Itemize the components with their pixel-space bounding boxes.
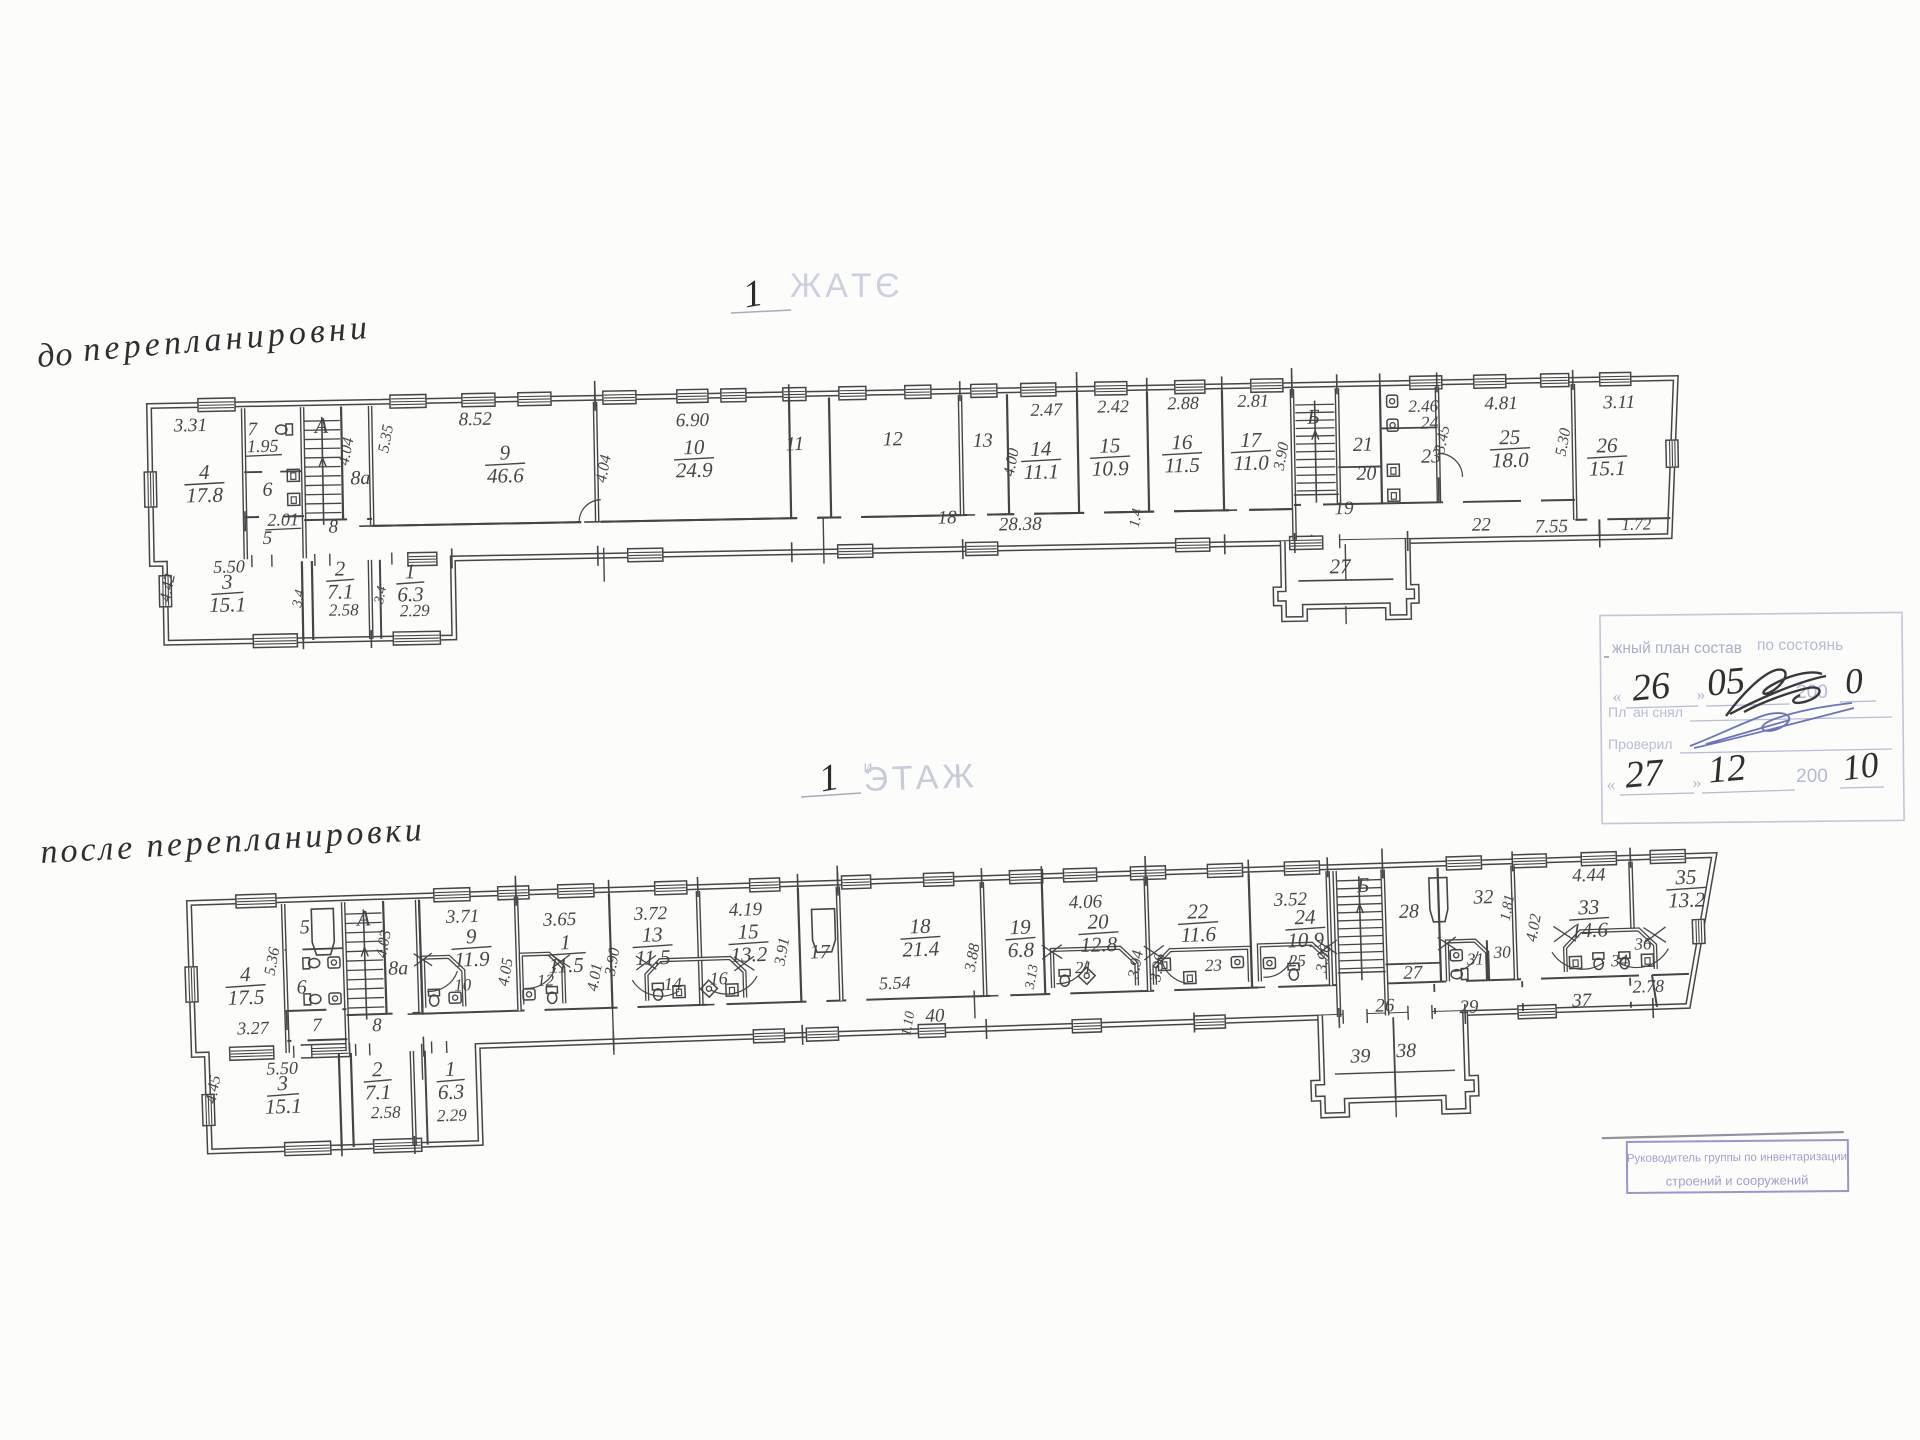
svg-text:13: 13 (973, 430, 993, 452)
svg-text:46.6: 46.6 (487, 463, 525, 488)
svg-text:Б: Б (1306, 405, 1320, 429)
svg-text:ЭТАЖ: ЭТАЖ (786, 267, 900, 305)
svg-text:8.52: 8.52 (458, 409, 492, 431)
svg-text:3.27: 3.27 (236, 1018, 270, 1039)
svg-text:12: 12 (883, 428, 903, 450)
svg-text:11.5: 11.5 (1164, 453, 1200, 478)
svg-text:7.55: 7.55 (1535, 516, 1569, 538)
svg-text:6: 6 (262, 479, 272, 501)
svg-text:26: 26 (1630, 664, 1672, 709)
svg-text:28.38: 28.38 (999, 514, 1043, 536)
svg-text:27: 27 (1623, 751, 1667, 796)
svg-text:12: 12 (537, 971, 555, 991)
svg-text:15.1: 15.1 (1589, 456, 1626, 481)
svg-text:9: 9 (499, 440, 510, 464)
svg-text:5.54: 5.54 (879, 972, 911, 993)
svg-text:8: 8 (328, 517, 338, 538)
svg-text:после: после (39, 829, 136, 871)
svg-text:37: 37 (1571, 990, 1593, 1012)
svg-text:6.3: 6.3 (438, 1079, 465, 1104)
svg-text:1: 1 (560, 930, 571, 954)
svg-text:12: 12 (1706, 746, 1748, 791)
svg-text:11.9: 11.9 (454, 947, 490, 972)
svg-text:3: 3 (276, 1071, 288, 1095)
svg-text:«: « (1607, 774, 1616, 794)
svg-text:10.9: 10.9 (1092, 456, 1130, 481)
svg-text:24.9: 24.9 (676, 458, 714, 483)
svg-text:6.90: 6.90 (676, 410, 710, 432)
svg-text:13: 13 (641, 922, 663, 947)
svg-text:39: 39 (1349, 1045, 1371, 1068)
svg-text:11.5: 11.5 (635, 945, 671, 970)
svg-text:27: 27 (1403, 962, 1424, 984)
svg-text:«: « (1613, 686, 1622, 706)
svg-text:2.58: 2.58 (371, 1102, 402, 1122)
svg-text:23: 23 (1205, 956, 1223, 976)
svg-text:2.88: 2.88 (1167, 393, 1199, 414)
svg-text:15: 15 (1099, 433, 1120, 457)
svg-text:11.6: 11.6 (1181, 922, 1217, 947)
svg-text:Проверил: Проверил (1608, 736, 1672, 752)
svg-text:2.42: 2.42 (1097, 396, 1129, 417)
svg-text:3.31: 3.31 (173, 415, 208, 437)
svg-text:29: 29 (1459, 997, 1479, 1019)
svg-text:26: 26 (1596, 433, 1618, 457)
svg-text:Руководитель группы по инвента: Руководитель группы по инвентаризации (1627, 1151, 1847, 1165)
svg-text:22: 22 (1187, 899, 1209, 924)
svg-text:2.47: 2.47 (1030, 399, 1063, 420)
svg-text:1.72: 1.72 (1621, 514, 1652, 534)
svg-text:21.4: 21.4 (902, 936, 940, 961)
svg-text:15: 15 (737, 919, 759, 944)
svg-text:5: 5 (263, 528, 273, 549)
svg-text:30: 30 (1492, 942, 1511, 962)
svg-text:25: 25 (1289, 951, 1307, 971)
svg-text:4: 4 (199, 460, 210, 484)
svg-text:5: 5 (299, 916, 310, 938)
svg-text:2.01: 2.01 (267, 509, 299, 530)
svg-text:19: 19 (1334, 498, 1354, 519)
svg-text:3: 3 (221, 570, 233, 594)
svg-text:2.78: 2.78 (1632, 976, 1664, 997)
svg-text:200: 200 (1796, 766, 1828, 787)
svg-text:14: 14 (663, 974, 682, 995)
svg-text:11.1: 11.1 (1024, 459, 1060, 484)
svg-text:строений и сооружений: строений и сооружений (1666, 1172, 1809, 1188)
svg-text:17: 17 (1240, 428, 1263, 452)
svg-text:32: 32 (1472, 886, 1494, 909)
svg-text:27: 27 (1329, 554, 1352, 578)
svg-text:6: 6 (296, 976, 307, 998)
svg-text:1.95: 1.95 (247, 436, 279, 457)
svg-text:13.2: 13.2 (730, 942, 768, 967)
svg-text:8а: 8а (388, 957, 409, 980)
svg-text:»: » (1697, 684, 1706, 704)
svg-text:20: 20 (1087, 909, 1109, 934)
svg-text:13.2: 13.2 (1668, 887, 1706, 912)
svg-text:4.19: 4.19 (729, 899, 763, 921)
svg-text:11.0: 11.0 (1233, 450, 1269, 475)
svg-text:Б: Б (1355, 873, 1369, 897)
svg-text:10: 10 (683, 435, 705, 459)
svg-text:14: 14 (1030, 436, 1052, 460)
svg-text:40: 40 (925, 1005, 945, 1027)
svg-text:6.8: 6.8 (1007, 937, 1034, 962)
svg-text:3.11: 3.11 (1602, 392, 1635, 414)
svg-text:жный план состав: жный план состав (1612, 640, 1742, 657)
svg-text:ан снял: ан снял (1633, 704, 1683, 720)
svg-text:24: 24 (1294, 905, 1316, 930)
svg-text:2.81: 2.81 (1237, 390, 1269, 411)
svg-text:2: 2 (335, 556, 346, 580)
svg-text:18: 18 (937, 507, 957, 528)
svg-text:15.1: 15.1 (265, 1094, 302, 1119)
svg-text:по состоянь: по состоянь (1757, 637, 1843, 654)
svg-text:1: 1 (740, 272, 766, 317)
svg-text:8: 8 (372, 1015, 383, 1036)
svg-text:17: 17 (810, 941, 832, 964)
svg-text:16: 16 (709, 968, 728, 989)
svg-text:26: 26 (1375, 995, 1395, 1017)
svg-text:4.81: 4.81 (1484, 393, 1518, 415)
svg-text:перепланировки: перепланировки (145, 811, 426, 865)
svg-text:34: 34 (1610, 951, 1629, 971)
svg-text:3.65: 3.65 (542, 909, 577, 931)
svg-text:33: 33 (1577, 895, 1600, 920)
svg-text:21: 21 (1353, 434, 1373, 456)
svg-text:16: 16 (1171, 430, 1193, 454)
svg-text:7.1: 7.1 (365, 1080, 392, 1105)
svg-text:18: 18 (909, 914, 931, 939)
svg-text:ЭТАЖ: ЭТАЖ (863, 757, 978, 799)
svg-text:А: А (312, 413, 328, 438)
svg-text:15.1: 15.1 (209, 592, 246, 617)
svg-text:10: 10 (454, 975, 472, 995)
svg-text:25: 25 (1499, 425, 1520, 449)
svg-text:28: 28 (1399, 900, 1420, 923)
svg-text:17.5: 17.5 (227, 985, 264, 1010)
svg-text:2.29: 2.29 (437, 1105, 468, 1125)
svg-text:2: 2 (372, 1057, 384, 1081)
svg-text:14.6: 14.6 (1571, 917, 1609, 942)
svg-text:31: 31 (1466, 949, 1485, 969)
svg-text:10: 10 (1840, 744, 1881, 788)
svg-text:18.0: 18.0 (1492, 448, 1530, 473)
svg-text:35: 35 (1674, 865, 1697, 890)
svg-text:19: 19 (1009, 915, 1031, 940)
svg-text:2.29: 2.29 (400, 601, 431, 621)
svg-text:36: 36 (1633, 934, 1652, 954)
svg-text:до: до (36, 336, 75, 375)
svg-text:12.8: 12.8 (1080, 932, 1118, 957)
svg-text:11: 11 (785, 433, 804, 455)
svg-text:»: » (1693, 772, 1702, 792)
svg-text:1: 1 (405, 559, 416, 583)
svg-text:0: 0 (1843, 660, 1864, 701)
svg-text:4.44: 4.44 (1572, 864, 1606, 886)
svg-text:перепланировни: перепланировни (82, 309, 373, 369)
svg-text:20: 20 (1356, 463, 1376, 485)
svg-text:А: А (354, 905, 371, 930)
svg-text:9: 9 (466, 924, 478, 948)
svg-text:38: 38 (1395, 1040, 1417, 1063)
svg-text:2.58: 2.58 (329, 600, 360, 620)
svg-text:1: 1 (445, 1057, 456, 1081)
svg-text:8а: 8а (350, 467, 370, 489)
svg-text:21: 21 (1075, 958, 1093, 978)
svg-text:17.8: 17.8 (186, 483, 224, 508)
svg-text:4: 4 (240, 962, 252, 986)
svg-text:22: 22 (1472, 514, 1492, 535)
svg-text:Пл: Пл (1608, 704, 1626, 720)
